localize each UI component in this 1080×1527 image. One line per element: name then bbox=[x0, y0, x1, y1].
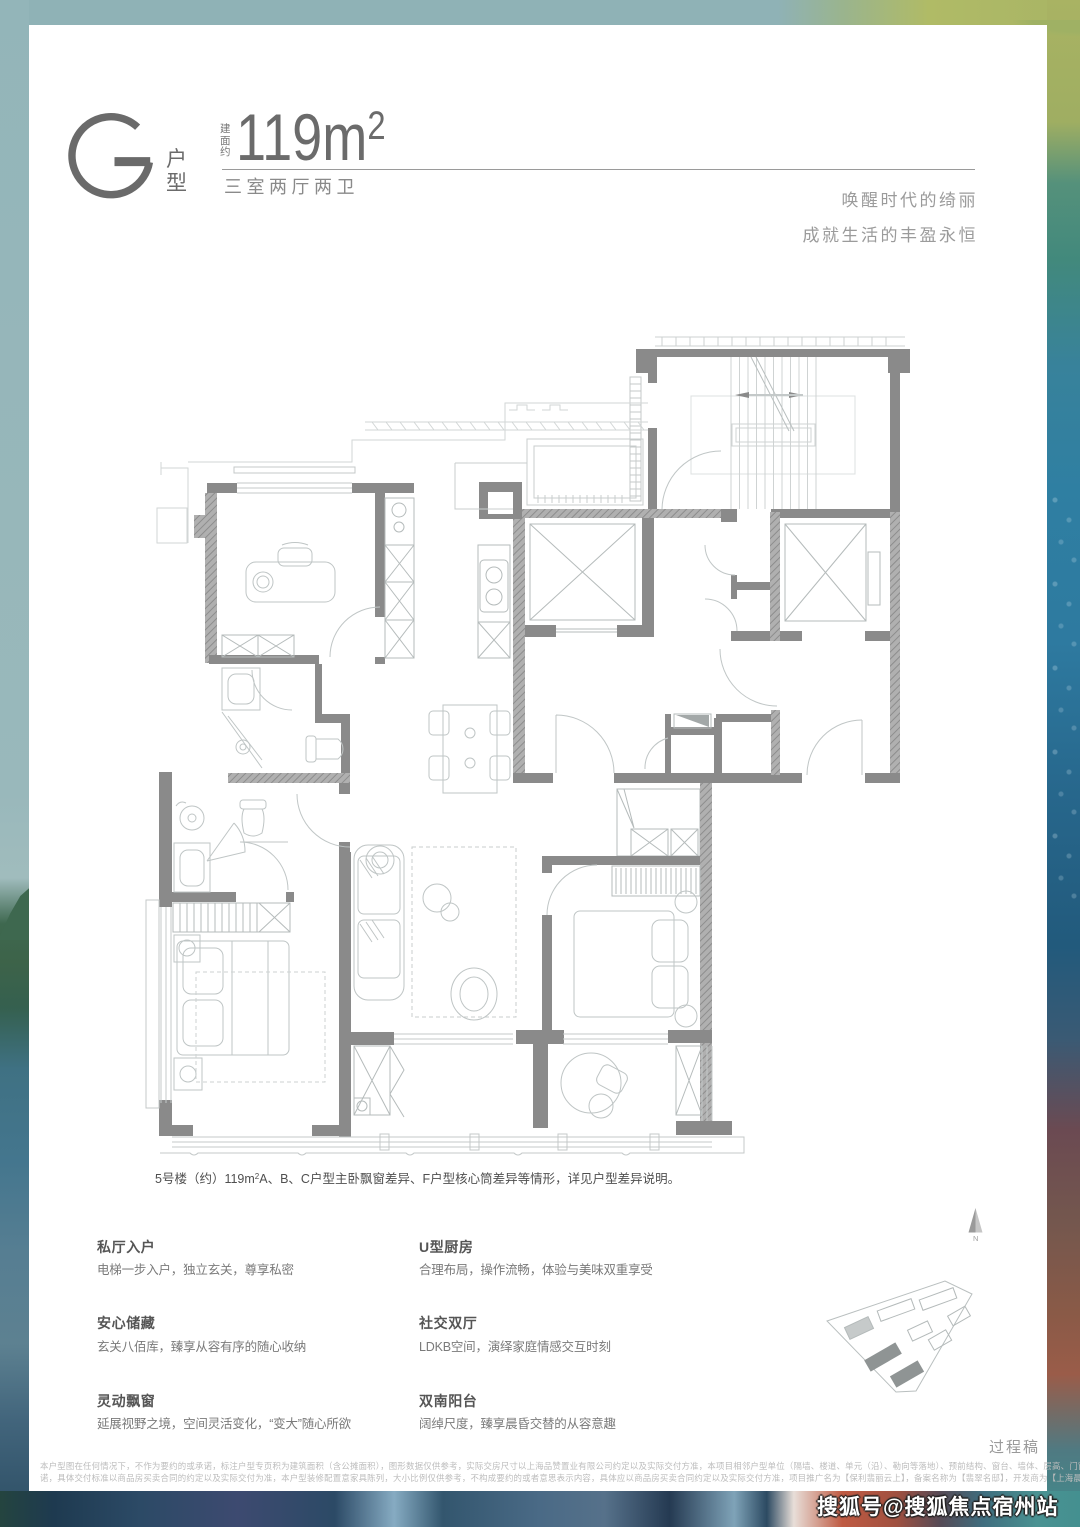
svg-text:N: N bbox=[973, 1234, 978, 1243]
